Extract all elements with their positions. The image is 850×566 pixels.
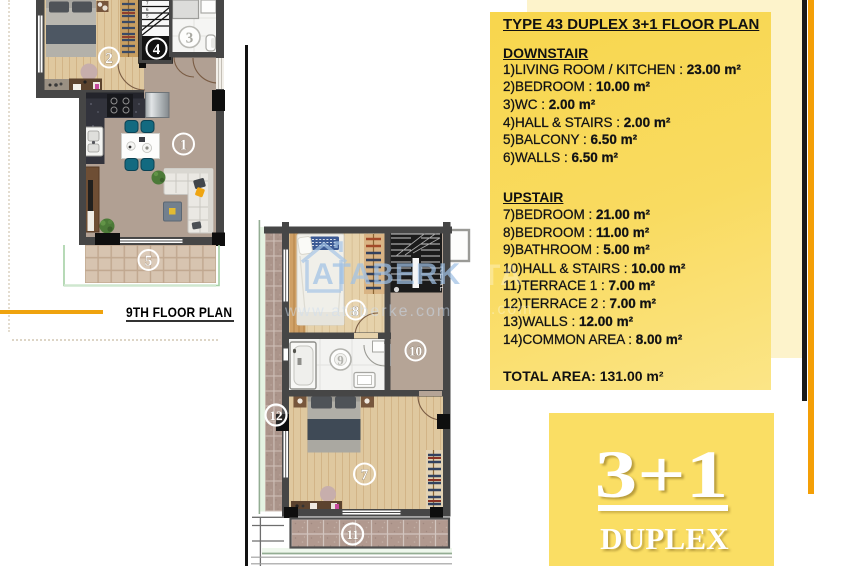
svg-text:www.ataberke.com: www.ataberke.com xyxy=(284,303,452,320)
svg-text:12: 12 xyxy=(270,408,283,423)
svg-text:2: 2 xyxy=(105,51,113,67)
svg-text:5: 5 xyxy=(145,254,153,270)
svg-text:4: 4 xyxy=(153,42,161,58)
svg-text:1: 1 xyxy=(180,138,188,154)
svg-text:ATABERK: ATABERK xyxy=(312,258,461,291)
svg-text:7: 7 xyxy=(361,468,369,484)
svg-text:3: 3 xyxy=(186,31,194,47)
svg-text:10: 10 xyxy=(409,344,422,359)
svg-text:9: 9 xyxy=(337,353,344,368)
svg-text:11: 11 xyxy=(346,527,358,542)
